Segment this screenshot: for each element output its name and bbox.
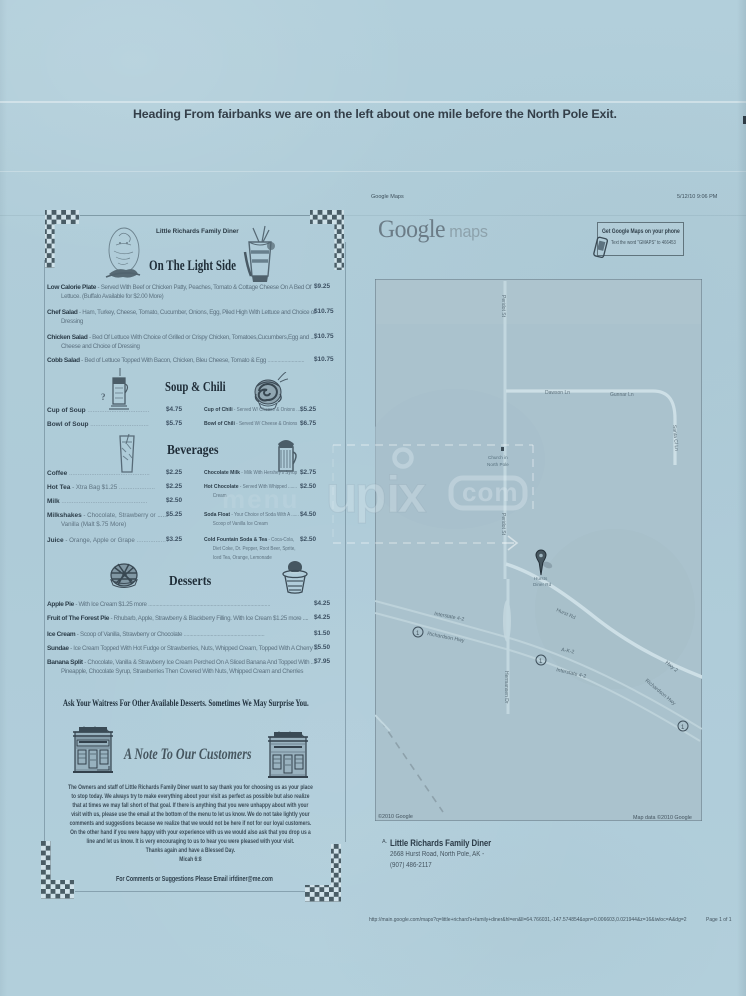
svg-text:ix: ix [386,466,426,524]
svg-text:Hermansen Dr: Hermansen Dr [503,671,509,704]
svg-text:?: ? [101,392,106,402]
svg-text:Peridot St: Peridot St [500,295,506,318]
svg-text:Gunnar Ln: Gunnar Ln [610,392,634,398]
svg-text:Diner Rd: Diner Rd [533,582,552,587]
svg-text:Dawson Ln: Dawson Ln [545,390,570,396]
svg-text:up: up [326,466,385,524]
svg-text:com: com [462,477,518,507]
svg-text:Hursts: Hursts [534,576,548,581]
svg-text:©2010 Google: ©2010 Google [378,813,413,820]
svg-text:Map data ©2010 Google: Map data ©2010 Google [633,814,692,821]
